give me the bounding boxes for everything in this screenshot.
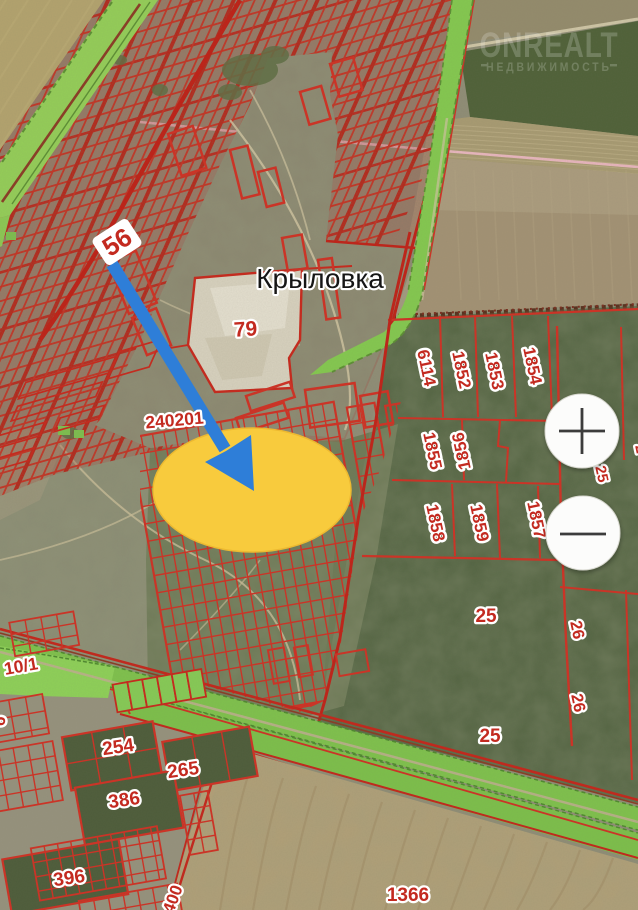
svg-text:25: 25 xyxy=(479,726,501,747)
svg-text:26: 26 xyxy=(566,619,587,641)
svg-text:НЕДВИЖИМОСТЬ: НЕДВИЖИМОСТЬ xyxy=(486,62,612,75)
svg-text:79: 79 xyxy=(233,317,258,342)
svg-text:Крыловка: Крыловка xyxy=(256,263,384,294)
svg-text:25: 25 xyxy=(475,606,497,627)
svg-text:265: 265 xyxy=(166,758,201,783)
svg-text:396: 396 xyxy=(52,866,86,891)
svg-text:25: 25 xyxy=(591,464,611,484)
svg-text:254: 254 xyxy=(101,735,136,760)
svg-text:ONREALT: ONREALT xyxy=(480,25,619,65)
svg-text:1366: 1366 xyxy=(387,885,429,906)
svg-text:26: 26 xyxy=(567,692,588,714)
svg-text:386: 386 xyxy=(107,788,141,813)
